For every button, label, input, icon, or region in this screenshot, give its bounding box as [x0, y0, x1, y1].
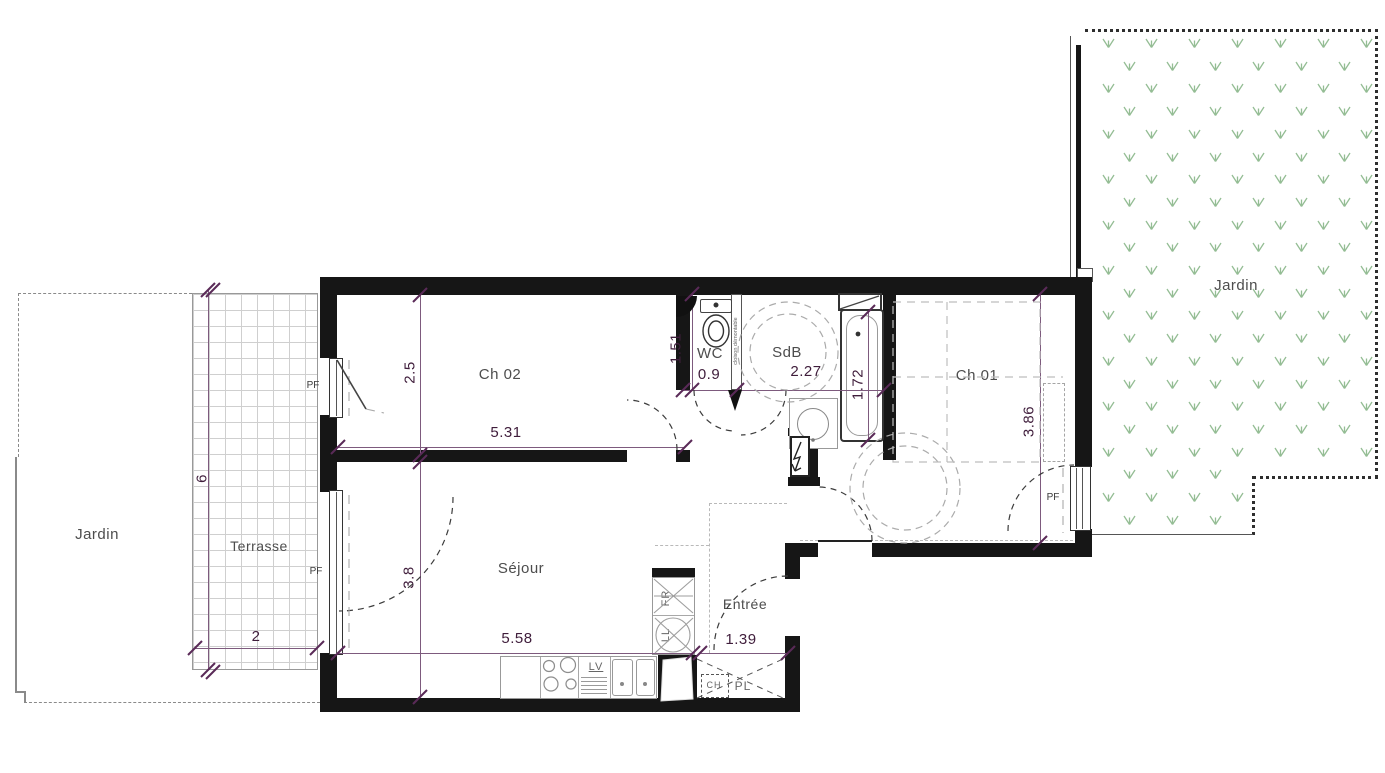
dimension-ticks — [188, 283, 1047, 704]
window-guides — [349, 360, 1063, 652]
sink-drain-1 — [620, 682, 624, 686]
door-arc-sdb — [741, 390, 786, 435]
rotation-circle-sdb-outer — [738, 302, 838, 402]
rotation-circle-sdb-inner — [750, 314, 826, 390]
lightning-icon — [792, 442, 801, 471]
bathtub-faucet — [856, 332, 861, 337]
door-swing-arcs — [339, 390, 1074, 650]
rotation-circle-hall-outer — [850, 433, 960, 543]
bed-outline-ch01 — [893, 302, 1063, 462]
fridge-symbol — [654, 579, 693, 613]
washbasin-drain — [811, 438, 815, 442]
door-arc-ch02 — [627, 400, 677, 450]
door-arc-sejour-pf — [339, 497, 453, 611]
door-arc-entree — [714, 576, 788, 650]
sink-drain-2 — [643, 682, 647, 686]
plan-detail-overlay — [0, 0, 1385, 773]
casement-line-ch02 — [337, 360, 366, 409]
floor-plan: 2.5 5.31 1.51 0.9 2.27 1.72 3.86 3.8 5.5… — [0, 0, 1385, 773]
rotation-circle-hall-inner — [863, 446, 947, 530]
washer-symbol — [655, 618, 693, 653]
door-arc-wc — [694, 390, 735, 431]
door-arc-ch01-pf — [1008, 465, 1074, 531]
tall-unit-door — [661, 657, 693, 701]
toilet-bowl — [703, 303, 729, 347]
stove-burners — [544, 658, 577, 692]
closet-diagonals — [697, 659, 783, 698]
